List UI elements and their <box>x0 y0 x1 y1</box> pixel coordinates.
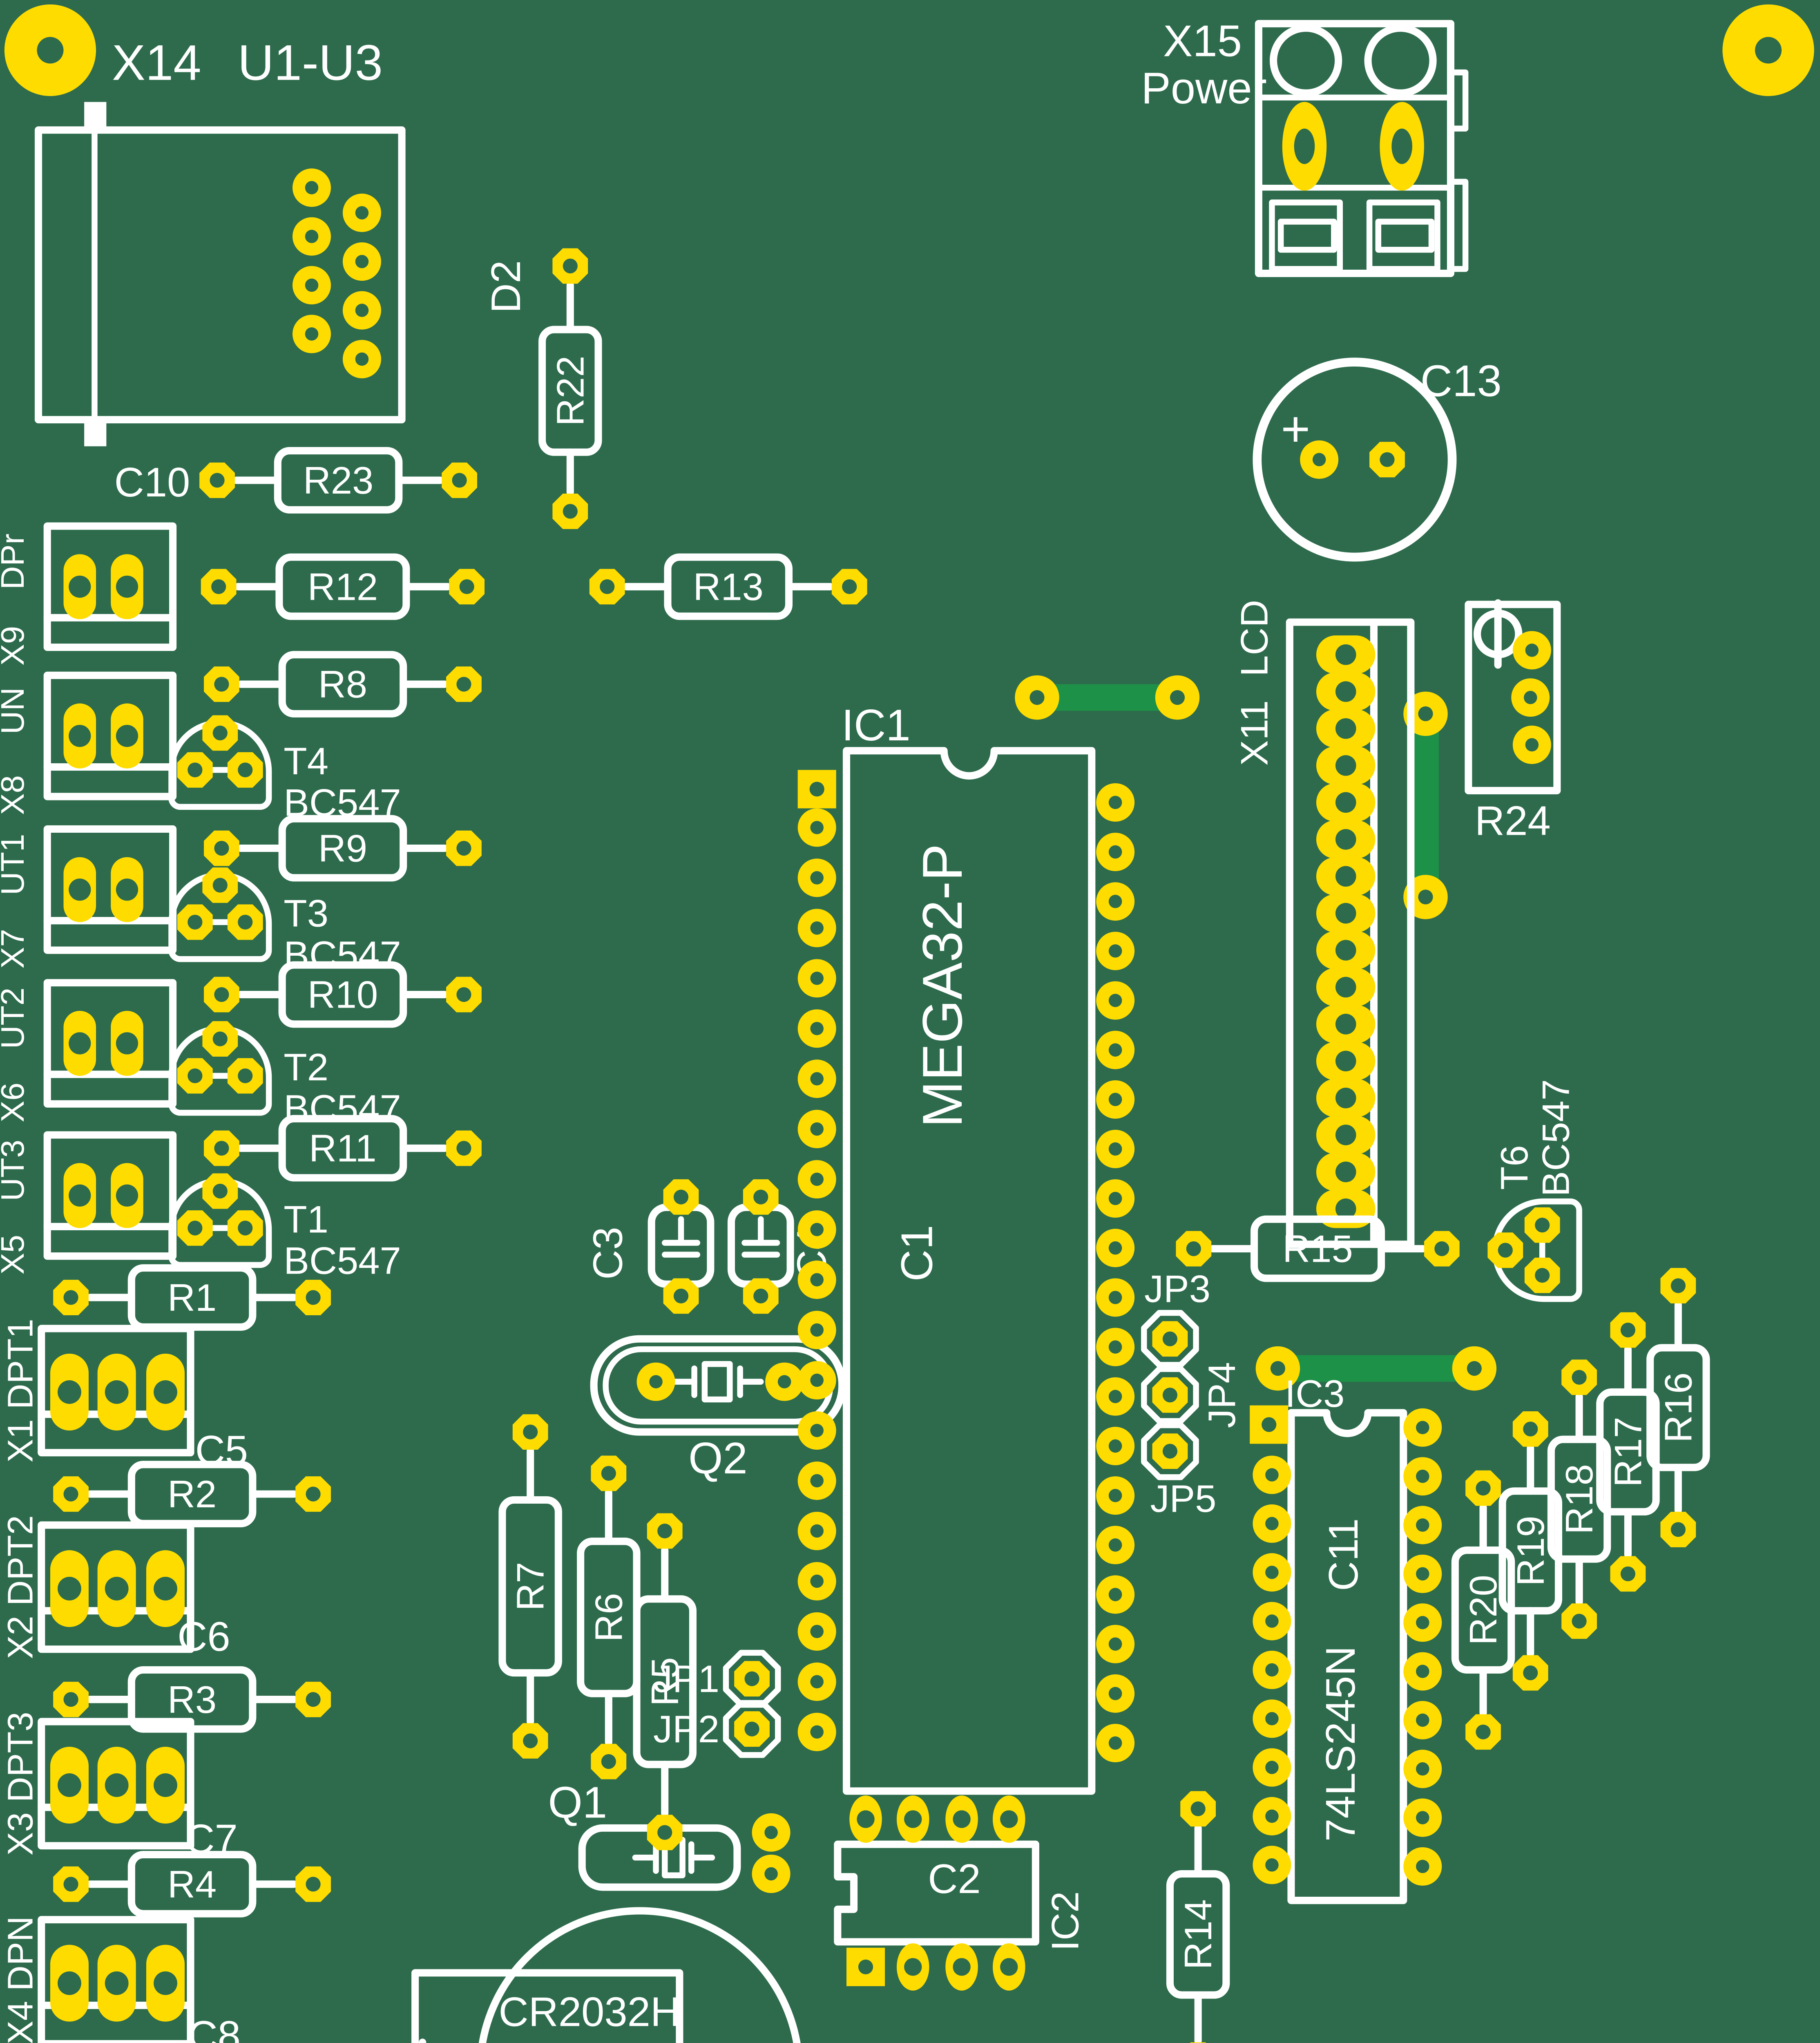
pad <box>204 831 239 866</box>
pad <box>798 1210 836 1249</box>
label-t3: T3 <box>284 892 328 935</box>
pad <box>1316 1116 1376 1154</box>
pad <box>1403 1750 1442 1788</box>
label-r23: R23 <box>303 459 373 502</box>
pad <box>663 1179 699 1215</box>
label-x14: X14 <box>112 35 201 91</box>
label-ut1: UT1 <box>0 834 31 895</box>
pad <box>1253 1553 1291 1591</box>
pad <box>177 1058 213 1094</box>
label-lcd: LCD <box>1233 600 1276 677</box>
pad <box>53 1682 89 1717</box>
label-c1: C1 <box>892 1225 942 1282</box>
pad <box>202 715 238 751</box>
label-jp3: JP3 <box>1144 1267 1210 1310</box>
pad <box>798 1562 836 1600</box>
label-r2: R2 <box>167 1473 217 1515</box>
pad <box>98 1550 136 1627</box>
label-t2: T2 <box>284 1046 328 1089</box>
mounting-hole <box>4 4 96 96</box>
pad <box>832 569 867 604</box>
pad <box>1403 1799 1442 1837</box>
pad <box>1316 820 1376 858</box>
pad <box>1513 1411 1548 1447</box>
pad <box>798 1411 836 1450</box>
label-c13: C13 <box>1420 356 1502 405</box>
pad <box>1316 783 1376 822</box>
pad <box>63 704 96 769</box>
label-r22: R22 <box>549 355 592 426</box>
pad <box>177 752 213 788</box>
pad <box>204 666 239 702</box>
pad <box>1253 1699 1291 1738</box>
label-x6: X6 <box>0 1082 31 1122</box>
label-d2: D2 <box>483 260 529 313</box>
pad <box>1513 1655 1548 1691</box>
board-substrate <box>0 0 1820 2043</box>
label-c10: C10 <box>114 459 190 505</box>
pad <box>1403 1701 1442 1739</box>
pad <box>1096 833 1134 871</box>
pad <box>1096 1377 1134 1416</box>
pad <box>1282 102 1326 191</box>
label-x9: X9 <box>0 626 31 666</box>
pad <box>293 168 331 207</box>
pad <box>202 867 238 903</box>
pad <box>849 1795 882 1843</box>
pad <box>1253 1846 1291 1884</box>
pad <box>1316 1005 1376 1043</box>
pad <box>798 1512 836 1550</box>
pad <box>513 1723 548 1759</box>
pad <box>993 1943 1025 1991</box>
pad <box>1610 1312 1646 1348</box>
label-x7: X7 <box>0 929 31 968</box>
pad <box>1316 1042 1376 1080</box>
pad <box>798 1110 836 1148</box>
pad <box>449 569 485 604</box>
pad <box>1561 1359 1597 1395</box>
label-74ls245n: 74LS245N <box>1318 1646 1364 1842</box>
label-cr2032h: CR2032H <box>499 1989 681 2035</box>
pad <box>752 1813 791 1852</box>
pad <box>202 1173 238 1209</box>
pad <box>1096 1179 1134 1218</box>
pad <box>1511 678 1550 717</box>
pad <box>1096 1130 1134 1168</box>
pad <box>50 1747 89 1824</box>
pad <box>1096 1427 1134 1465</box>
pad <box>637 1363 675 1401</box>
pad <box>201 569 237 604</box>
via <box>1452 1346 1496 1391</box>
label-t2-part: BC547 <box>284 1087 401 1130</box>
label-x5: X5 <box>0 1235 31 1274</box>
pad <box>1403 1457 1442 1495</box>
label-u1-u3: U1-U3 <box>238 35 383 91</box>
label-mega32p: MEGA32-P <box>911 844 974 1128</box>
pad <box>1152 1321 1188 1357</box>
pad <box>1096 1476 1134 1515</box>
pad <box>1403 1603 1442 1642</box>
pad <box>1403 1506 1442 1544</box>
pad <box>798 1311 836 1349</box>
pad <box>343 242 381 281</box>
pad <box>1316 635 1376 674</box>
pad <box>1096 1080 1134 1119</box>
pad <box>1465 1714 1501 1750</box>
pad <box>1513 726 1551 764</box>
pin1-pad <box>798 770 836 808</box>
pad <box>50 1354 89 1431</box>
pad <box>993 1795 1025 1843</box>
pad <box>798 1059 836 1098</box>
pad <box>1525 1258 1560 1293</box>
pin1-pad <box>846 1948 885 1986</box>
pad <box>1316 931 1376 970</box>
label-dpr: DPr <box>0 534 31 590</box>
pad <box>1253 1455 1291 1494</box>
label-r20: R20 <box>1462 1575 1505 1645</box>
pad <box>293 217 331 256</box>
pad <box>1316 709 1376 748</box>
via <box>1015 675 1059 720</box>
pad <box>343 291 381 329</box>
pad <box>798 858 836 897</box>
pad <box>1152 1377 1188 1413</box>
pad <box>798 1160 836 1198</box>
label-x2-dpt2: X2 DPT2 <box>1 1515 40 1659</box>
pad <box>98 1354 136 1431</box>
pad <box>50 1550 89 1627</box>
pad <box>1424 1231 1460 1267</box>
pad <box>1096 981 1134 1019</box>
pad <box>1513 631 1551 669</box>
pad <box>1096 1625 1134 1663</box>
pad <box>1660 1512 1696 1547</box>
pad <box>442 463 477 498</box>
pad <box>513 1414 548 1450</box>
pad <box>1316 746 1376 785</box>
label-t4: T4 <box>284 740 328 782</box>
pad <box>98 1747 136 1824</box>
pad <box>1561 1603 1597 1639</box>
pad <box>1465 1471 1501 1506</box>
label-r17: R17 <box>1606 1417 1649 1487</box>
label-r7: R7 <box>509 1562 552 1611</box>
label-un: UN <box>0 687 31 734</box>
pad <box>146 1747 185 1824</box>
pad <box>591 1744 626 1779</box>
pad <box>1403 1847 1442 1886</box>
pad <box>50 1945 89 2022</box>
pad <box>446 666 482 702</box>
pad <box>1096 1575 1134 1614</box>
pad <box>111 1011 143 1076</box>
pad <box>1525 1207 1560 1243</box>
pad <box>1152 1433 1188 1469</box>
label-t6: T6 <box>1493 1145 1536 1190</box>
pad <box>111 554 143 619</box>
label-t3-part: BC547 <box>284 933 401 976</box>
label-c2: C2 <box>928 1856 980 1902</box>
label-c3: C3 <box>585 1227 631 1279</box>
pad <box>199 463 235 498</box>
pad <box>1096 1229 1134 1267</box>
pad <box>798 1713 836 1751</box>
label-r19: R19 <box>1509 1515 1552 1586</box>
pad <box>146 1354 185 1431</box>
label-ic1: IC1 <box>842 700 911 750</box>
pad <box>53 1280 89 1315</box>
pad <box>798 1361 836 1399</box>
pad <box>1487 1232 1523 1268</box>
label-power: Power <box>1141 63 1266 113</box>
label-r24: R24 <box>1475 798 1551 844</box>
pad <box>798 959 836 997</box>
label-r15: R15 <box>1282 1227 1353 1270</box>
pad <box>798 909 836 947</box>
pad <box>1096 1526 1134 1564</box>
label-r8: R8 <box>318 663 367 706</box>
pad <box>1253 1651 1291 1689</box>
pad <box>552 494 588 529</box>
label-r9: R9 <box>318 827 367 870</box>
pad <box>1096 932 1134 970</box>
label-r18: R18 <box>1558 1464 1601 1534</box>
label-r12: R12 <box>308 565 378 608</box>
label-jp2: JP2 <box>653 1708 719 1750</box>
label-x15: X15 <box>1163 16 1242 65</box>
pad <box>743 1179 779 1215</box>
label-r14: R14 <box>1177 1899 1219 1969</box>
pad <box>1253 1748 1291 1787</box>
label-ut2: UT2 <box>0 988 31 1049</box>
pad <box>177 1210 213 1246</box>
pad <box>1403 1652 1442 1690</box>
pad <box>1369 442 1405 477</box>
label-q1: Q1 <box>548 1778 607 1827</box>
pad <box>228 1058 263 1094</box>
pcb-layout: X14 U1-U3 X15 Power + C13 D2 C10 DPr X9 … <box>0 0 1820 2043</box>
pad <box>552 248 588 284</box>
via <box>1155 675 1199 720</box>
pad <box>204 1131 239 1166</box>
pad <box>204 977 239 1013</box>
pad <box>752 1855 791 1893</box>
pad <box>1096 1278 1134 1317</box>
label-c11: C11 <box>1320 1518 1367 1591</box>
c13-plus-mark: + <box>1281 401 1310 457</box>
pad <box>647 1513 683 1549</box>
pad <box>111 1163 143 1228</box>
pad <box>228 904 263 940</box>
label-x3-dpt3: X3 DPT3 <box>1 1712 40 1855</box>
pad <box>734 1711 770 1747</box>
pad <box>591 1455 626 1491</box>
pad <box>146 1550 185 1627</box>
mounting-hole <box>1722 4 1814 96</box>
label-r10: R10 <box>308 973 378 1016</box>
pad <box>1180 1791 1216 1826</box>
pad <box>1253 1504 1291 1543</box>
pad <box>446 1131 482 1166</box>
pad <box>1380 102 1424 191</box>
pad <box>647 1815 683 1850</box>
pad <box>663 1278 699 1314</box>
pad <box>295 1866 331 1902</box>
pad <box>63 857 96 922</box>
label-x8: X8 <box>0 775 31 815</box>
pad <box>1316 1079 1376 1117</box>
pad <box>734 1661 770 1697</box>
pad <box>446 977 482 1013</box>
label-x4-dpn: X4 DPN <box>1 1916 40 2043</box>
label-x11: X11 <box>1233 700 1276 766</box>
pad <box>146 1945 185 2022</box>
pad <box>343 340 381 378</box>
pad <box>1316 968 1376 1006</box>
pad <box>743 1278 779 1314</box>
label-ic3: IC3 <box>1285 1372 1344 1415</box>
pad <box>798 1009 836 1048</box>
pcb-board: X14 U1-U3 X15 Power + C13 D2 C10 DPr X9 … <box>0 0 1820 2043</box>
pad <box>798 808 836 847</box>
pad <box>1096 1328 1134 1366</box>
pad <box>1316 673 1376 711</box>
pad <box>1316 1153 1376 1191</box>
pad <box>63 1163 96 1228</box>
pad <box>53 1476 89 1512</box>
label-t1: T1 <box>284 1198 328 1241</box>
ic3-pads-left <box>1253 1455 1291 1884</box>
label-jp4: JP4 <box>1200 1362 1243 1428</box>
pad <box>1403 1408 1442 1447</box>
label-c8: C8 <box>188 2012 241 2043</box>
pin1-pad <box>1250 1405 1288 1444</box>
pad <box>98 1945 136 2022</box>
label-t6-part: BC547 <box>1534 1079 1577 1196</box>
label-r16: R16 <box>1657 1372 1699 1443</box>
label-r11: R11 <box>309 1127 376 1170</box>
pad <box>945 1795 978 1843</box>
pad <box>295 1476 331 1512</box>
pad <box>63 1011 96 1076</box>
pad <box>1403 1555 1442 1593</box>
pad <box>1096 882 1134 921</box>
pad <box>897 1795 929 1843</box>
pad <box>798 1612 836 1651</box>
pad <box>202 1021 238 1057</box>
pad <box>1253 1797 1291 1835</box>
pad <box>1096 783 1134 822</box>
pad <box>53 1866 89 1902</box>
pad <box>897 1943 929 1991</box>
label-jp5: JP5 <box>1150 1477 1216 1520</box>
pad <box>1316 894 1376 932</box>
label-r6: R6 <box>587 1593 630 1642</box>
pad <box>798 1261 836 1299</box>
pad <box>446 831 482 866</box>
pad <box>1610 1556 1646 1591</box>
label-r13: R13 <box>693 565 763 608</box>
pad <box>1316 857 1376 896</box>
pad <box>295 1682 331 1717</box>
label-ic2: IC2 <box>1044 1891 1087 1951</box>
label-q2: Q2 <box>688 1433 748 1483</box>
pad <box>590 569 625 604</box>
pad <box>1253 1602 1291 1641</box>
label-t1-part: BC547 <box>284 1239 401 1282</box>
label-r5: R5 <box>643 1657 686 1706</box>
pad <box>945 1943 978 1991</box>
label-r4: R4 <box>167 1863 217 1906</box>
pad <box>228 752 263 788</box>
label-x1-dpt1: X1 DPT1 <box>1 1319 40 1462</box>
pad <box>1660 1268 1696 1303</box>
pad <box>798 1663 836 1701</box>
label-r3: R3 <box>167 1678 217 1721</box>
pad <box>1176 1231 1211 1267</box>
pad <box>798 1462 836 1500</box>
label-ut3: UT3 <box>0 1140 31 1201</box>
pad <box>111 704 143 769</box>
pad <box>343 194 381 232</box>
pad <box>1096 1674 1134 1713</box>
pad <box>293 266 331 304</box>
pad <box>228 1210 263 1246</box>
pad <box>295 1280 331 1315</box>
label-r1: R1 <box>167 1276 217 1319</box>
pad <box>1096 1724 1134 1762</box>
pad <box>63 554 96 619</box>
pad <box>177 904 213 940</box>
pad <box>1096 1031 1134 1069</box>
pad <box>111 857 143 922</box>
pad <box>293 315 331 353</box>
